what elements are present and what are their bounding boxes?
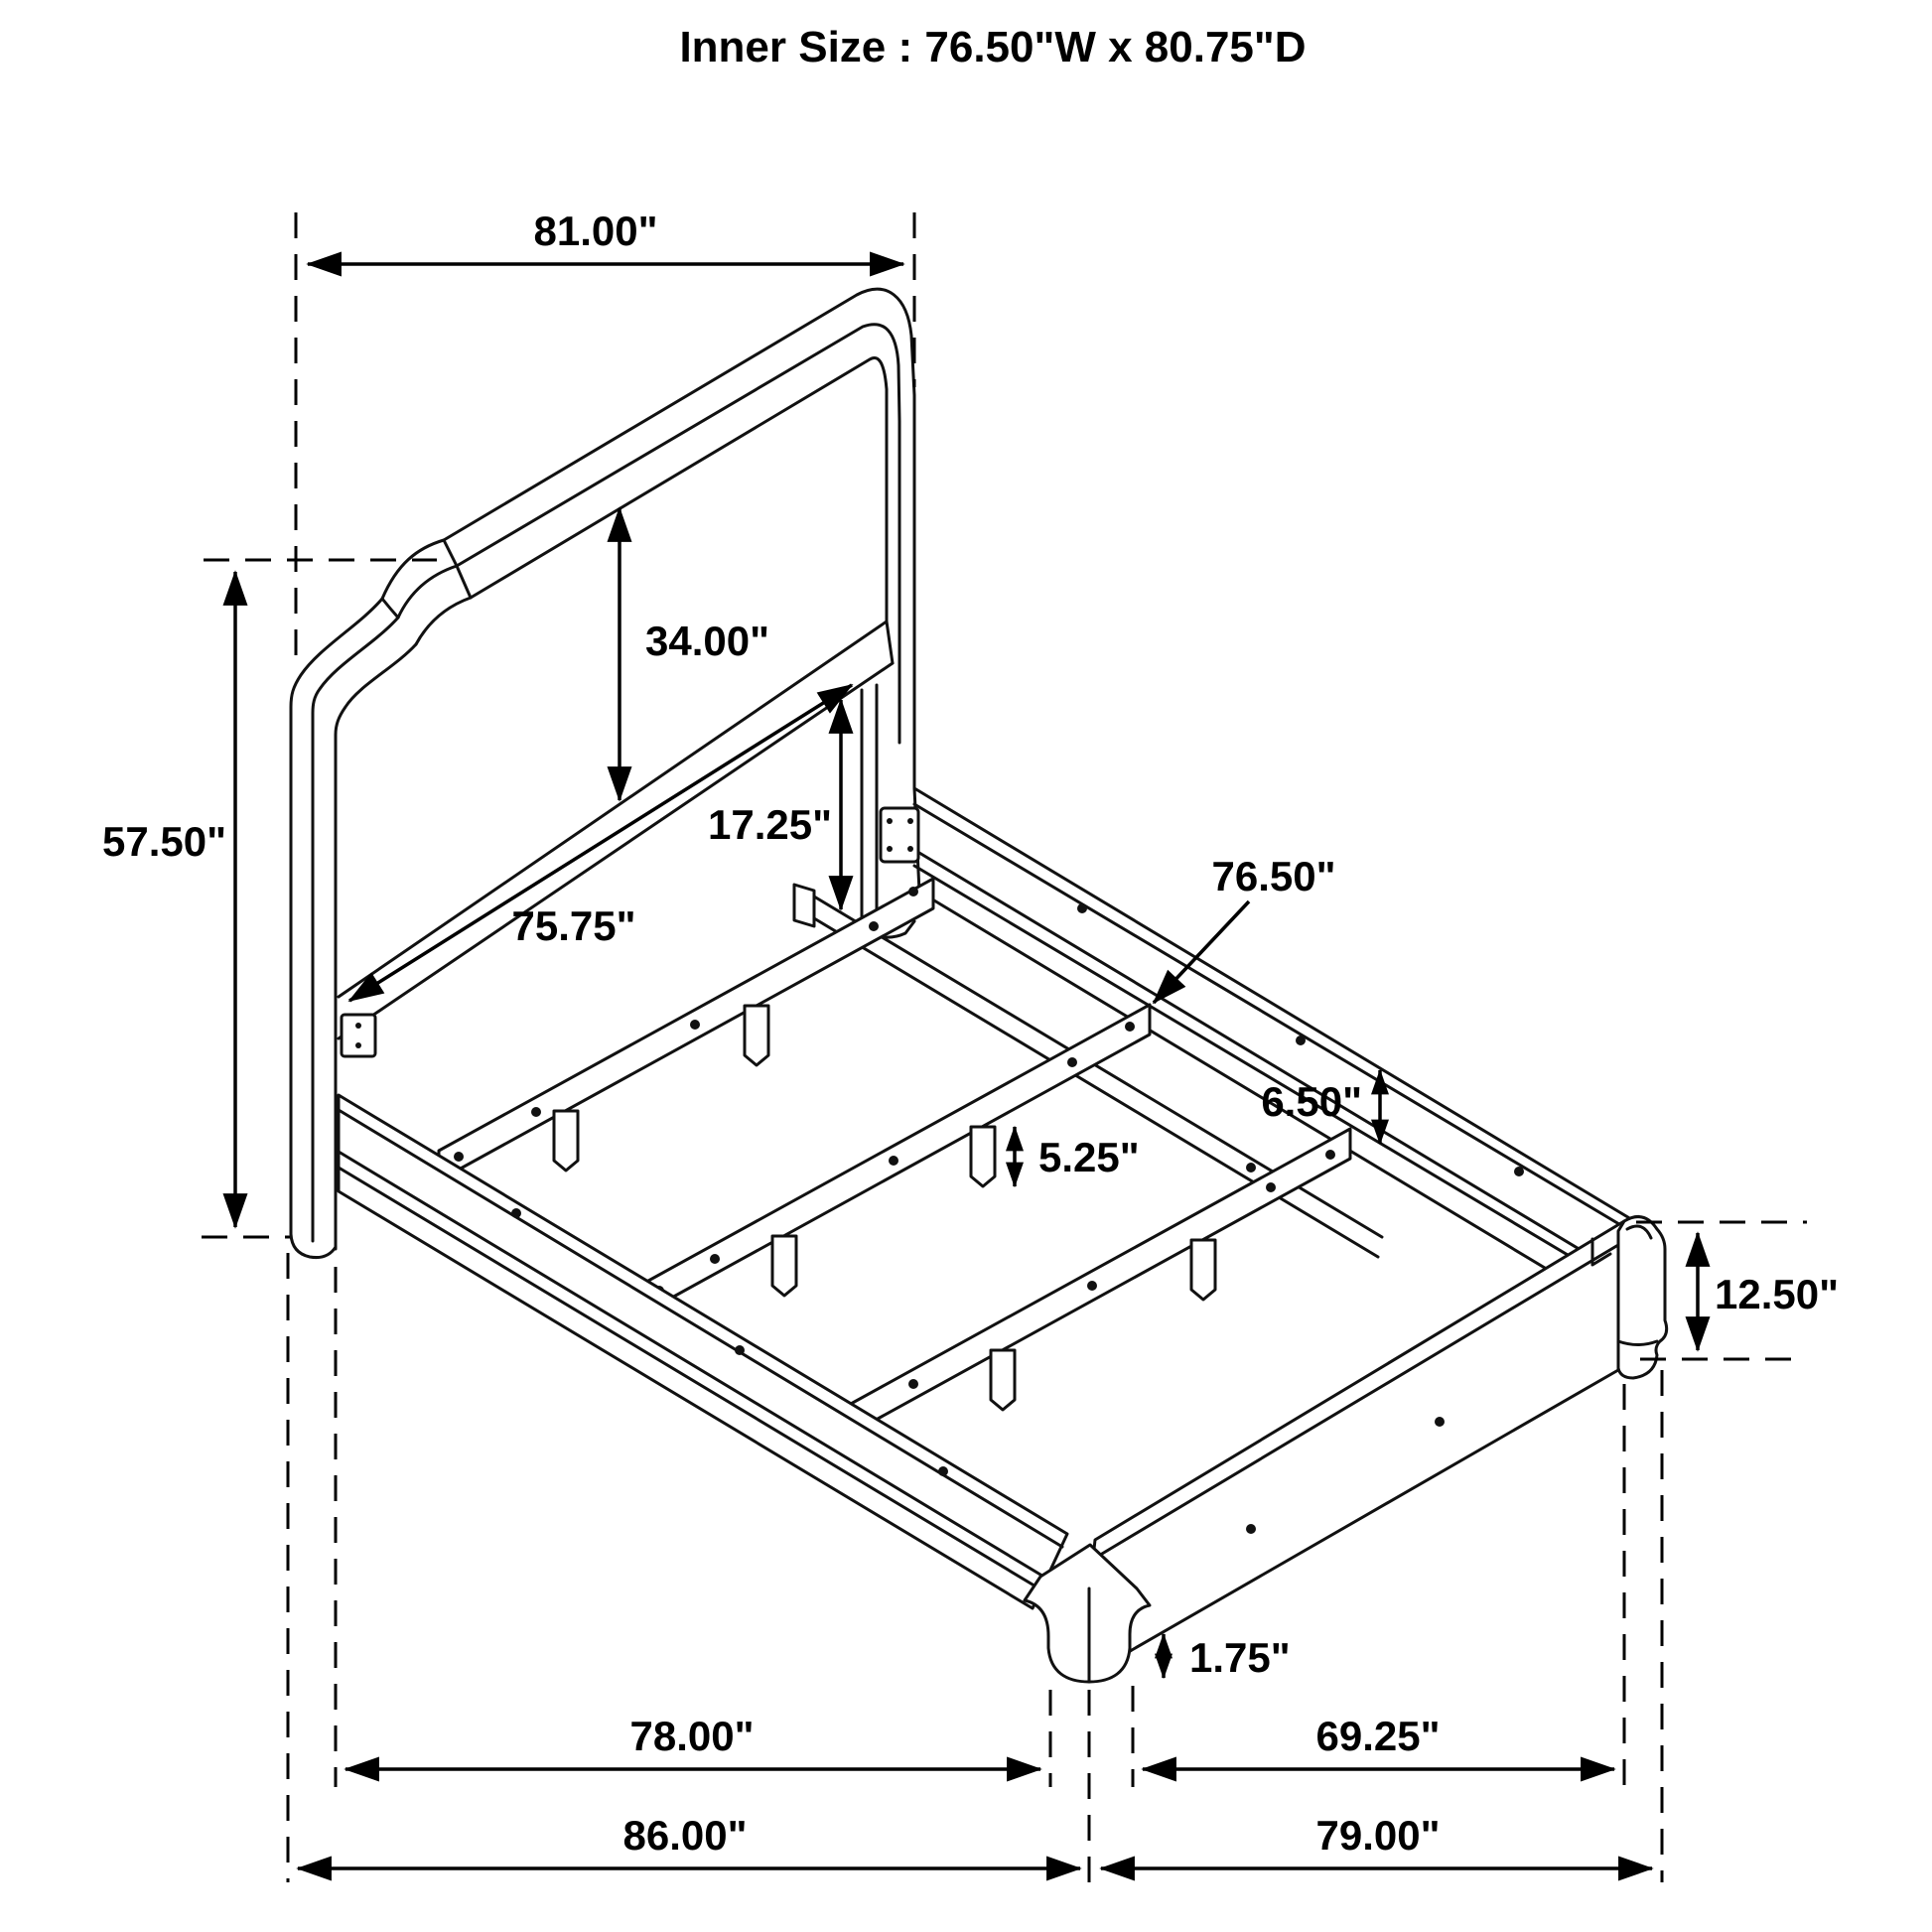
bolt-hole [1435, 1417, 1445, 1427]
dim-foot-height: 1.75" [1164, 1634, 1291, 1681]
slat-2-leg [971, 1127, 995, 1186]
bolt-hole [1296, 1035, 1306, 1045]
bed-dimension-diagram: 81.00" 57.50" 34.00" 75.75" 17.25" 76.50… [0, 0, 1932, 1932]
dim-label: 78.00" [629, 1713, 754, 1759]
dim-label: 6.50" [1261, 1078, 1362, 1125]
dim-headboard-total-height: 57.50" [102, 572, 235, 1227]
dim-label: 17.25" [708, 801, 832, 848]
bolt-hole [454, 1152, 464, 1162]
bolt-hole [1077, 903, 1087, 913]
top-rail-joint-line-3 [382, 599, 398, 618]
bolt-hole [908, 1379, 918, 1389]
bolt-hole [1266, 1182, 1276, 1192]
bolt-hole [1514, 1167, 1524, 1176]
far-rail-ledge-line-2 [914, 866, 1604, 1277]
bolt-hole [1125, 1022, 1135, 1032]
bolt-hole [511, 1208, 521, 1218]
bolt-hole [889, 1156, 898, 1166]
dim-label: 1.75" [1189, 1634, 1291, 1681]
dim-headboard-panel-height: 34.00" [620, 508, 769, 800]
slat-3-leg [1191, 1240, 1215, 1300]
diagram-page: 81.00" 57.50" 34.00" 75.75" 17.25" 76.50… [0, 0, 1932, 1932]
headboard-top-rail-inner [416, 357, 887, 644]
bolt-hole [1246, 1163, 1256, 1173]
bolt-hole [1246, 1524, 1256, 1534]
dim-label: 75.75" [511, 902, 635, 949]
bolt-hole [938, 1466, 948, 1476]
plate-screw [907, 846, 913, 852]
page-title: Inner Size : 76.50"W x 80.75"D [679, 23, 1306, 71]
plate-screw [887, 846, 893, 852]
dim-footboard-corner-height: 12.50" [1698, 1233, 1839, 1350]
slat-1-leg [554, 1111, 578, 1171]
rail-mounting-plate [881, 808, 918, 862]
rail-hook-plate [342, 1015, 375, 1056]
top-rail-joint-line-1 [444, 540, 457, 566]
plate-screw [887, 818, 893, 824]
bolt-hole [908, 887, 918, 897]
headboard-top-rail-outer [382, 289, 914, 788]
dim-label: 86.00" [622, 1812, 747, 1859]
bolt-hole [1067, 1057, 1077, 1067]
panel-bottom-rail-cap [887, 621, 893, 663]
bolt-hole [1325, 1150, 1335, 1160]
near-rail-molding-line [339, 1110, 1062, 1547]
dim-side-rail-length: 79.00" [1101, 1812, 1652, 1868]
dim-label: 81.00" [533, 207, 657, 254]
bolt-hole [1087, 1281, 1097, 1291]
top-rail-joint-line-2 [457, 566, 471, 598]
dim-label: 69.25" [1315, 1713, 1440, 1759]
dim-slat-leg-height: 5.25" [1015, 1127, 1140, 1186]
center-rail-end-block [794, 885, 814, 926]
plate-screw [355, 1023, 361, 1029]
foot-rail [1090, 1221, 1628, 1664]
dim-label: 57.50" [102, 818, 226, 865]
panel-bottom-rail-bottom [339, 663, 893, 1038]
corner-post-body [1618, 1217, 1667, 1379]
headboard [291, 289, 918, 1257]
foot-rail-face [1090, 1221, 1624, 1664]
dim-label: 34.00" [645, 618, 769, 664]
dim-inner-frame-length: 78.00" [345, 1713, 1040, 1769]
slat-1-leg [745, 1006, 768, 1065]
dim-label: 79.00" [1315, 1812, 1440, 1859]
dim-label: 12.50" [1715, 1271, 1839, 1317]
slat-2-leg [772, 1236, 796, 1296]
dim-footboard-inner-length: 69.25" [1143, 1713, 1614, 1769]
dim-label: 76.50" [1211, 853, 1335, 899]
plate-screw [907, 818, 913, 824]
bolt-hole [690, 1020, 700, 1030]
dim-label: 5.25" [1038, 1134, 1140, 1180]
bolt-hole [531, 1107, 541, 1117]
slat-3-leg [991, 1350, 1015, 1410]
extension-lines [202, 212, 1807, 1882]
bolt-hole [735, 1345, 745, 1355]
plate-screw [355, 1042, 361, 1048]
dim-overall-length: 86.00" [298, 1812, 1080, 1868]
bolt-hole [710, 1254, 720, 1264]
bolt-hole [869, 921, 879, 931]
dim-headboard-width: 81.00" [308, 207, 903, 264]
footboard-corner-post [1618, 1217, 1667, 1379]
bed-drawing [291, 289, 1667, 1682]
